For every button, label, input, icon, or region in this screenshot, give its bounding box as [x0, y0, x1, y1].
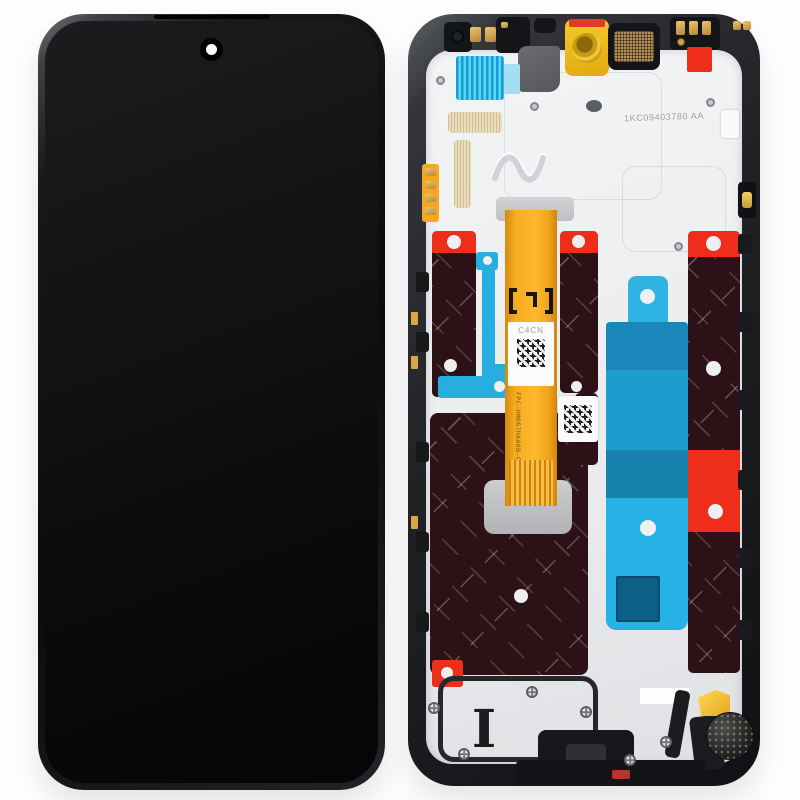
antenna-contact-flex [670, 17, 720, 50]
sheet-hole [514, 589, 528, 603]
flex-part-number: FPC-HM067HAA0B-C [514, 392, 522, 461]
screw [526, 686, 538, 698]
gold-contact-pad [425, 194, 436, 202]
frame-clip [416, 332, 429, 352]
red-sticker-block [688, 450, 740, 532]
frame-clip [416, 532, 429, 552]
flex-gold-fingers [509, 460, 553, 506]
tab-hole [640, 289, 655, 304]
bottom-alignment-mark: I [464, 700, 504, 760]
screw-hole [530, 102, 539, 111]
phone-front-view [38, 14, 385, 790]
screw [428, 702, 440, 714]
side-button-flex [422, 164, 439, 222]
flex-label: C4CN [508, 322, 554, 386]
white-sticker [721, 110, 739, 138]
tan-mesh-pad [448, 112, 502, 133]
punch-hole-camera-icon [200, 38, 223, 61]
gold-contact-pad [676, 21, 685, 35]
gold-contact-pad [742, 192, 752, 208]
product-photo-lcd-assembly: 1KC09403780 AA [0, 0, 800, 800]
foam-pad [518, 46, 560, 92]
tab-hole [572, 235, 585, 248]
qr-code [564, 405, 592, 433]
dark-blue-patch [616, 576, 660, 622]
side-contact-gold [411, 516, 418, 529]
screw [660, 736, 672, 748]
blue-adhesive-strip [482, 268, 495, 378]
frame-clip [738, 390, 752, 410]
red-pull-tab [560, 231, 598, 253]
gold-contact-pad [425, 207, 436, 215]
tab-hole [640, 520, 656, 536]
frame-clip [738, 312, 752, 332]
red-pull-tab [432, 231, 476, 253]
earpiece-speaker-module [608, 23, 660, 70]
tab-hole [494, 381, 505, 392]
gold-contact-pad [702, 21, 711, 35]
plate-qr-label [558, 396, 598, 442]
screw [580, 706, 592, 718]
lcd-flex-cable: C4CN FPC-HM067HAA0B-C LJ 2448 [505, 210, 557, 506]
gold-contact-pad [733, 21, 741, 30]
gold-contact-pad [743, 21, 751, 30]
red-seal-dot [612, 770, 630, 779]
tab-hole [447, 235, 461, 249]
blue-adhesive-foot [438, 376, 514, 398]
screw-hole [674, 242, 683, 251]
blue-adhesive-tape [456, 56, 504, 100]
front-camera-module [444, 22, 472, 52]
vibration-motor [706, 712, 754, 760]
gold-contact-ring [677, 38, 685, 46]
screw [624, 754, 636, 766]
side-switch-flex [738, 182, 756, 218]
speaker-mesh [614, 31, 654, 62]
screw-hole [436, 76, 445, 85]
red-pull-tab [688, 231, 740, 257]
flex-label-code: C4CN [508, 326, 554, 335]
lcd-screen [45, 21, 378, 783]
graphite-sheet-left [432, 231, 476, 397]
phone-back-view: 1KC09403780 AA [408, 14, 760, 786]
frame-clip [738, 548, 752, 568]
earpiece-slit [154, 15, 270, 19]
adhesive-pull-tab [504, 64, 520, 94]
blue-adhesive-tab-top [628, 276, 668, 326]
red-sticker [687, 47, 712, 72]
tab-hole [483, 256, 492, 265]
frame-clip [416, 272, 429, 292]
embossed-wave-logo [490, 146, 548, 192]
blue-adhesive-block [606, 322, 688, 630]
bottom-module-base [516, 760, 706, 784]
frame-clip [416, 612, 429, 632]
side-contact-gold [411, 356, 418, 369]
frame-clip [416, 442, 429, 462]
camera-lens-icon [451, 30, 464, 43]
camera-lens-dot [206, 44, 217, 55]
sheet-hole [444, 359, 457, 372]
screw-hole [706, 98, 715, 107]
gold-contact-pad [501, 22, 508, 28]
gold-contact-pad [485, 27, 496, 42]
sheet-hole [571, 381, 582, 392]
graphite-sheet-center [560, 231, 598, 393]
flash-lens-icon [572, 33, 602, 63]
graphite-sheet-right [688, 231, 740, 673]
flash-flex-module [565, 19, 609, 76]
alignment-mark [526, 292, 537, 307]
frame-clip [738, 470, 752, 490]
alignment-bracket-left [509, 288, 517, 314]
tab-hole [706, 236, 721, 251]
frame-clip [738, 234, 752, 254]
frame-clip [738, 620, 752, 640]
qr-code [517, 339, 545, 367]
side-contact-gold [411, 312, 418, 325]
screw [458, 748, 470, 760]
gold-contact-pad [425, 181, 436, 189]
tan-mesh-strip [454, 140, 471, 208]
gold-contact-pad [425, 168, 436, 176]
red-tape-strip [569, 19, 605, 27]
sheet-hole [706, 361, 721, 376]
gold-contact-pad [689, 21, 698, 35]
bracket-part [534, 18, 556, 33]
tab-hole [708, 504, 723, 519]
ground-pad [586, 100, 602, 112]
alignment-bracket-right [545, 288, 553, 314]
gold-contact-pad [470, 27, 481, 42]
